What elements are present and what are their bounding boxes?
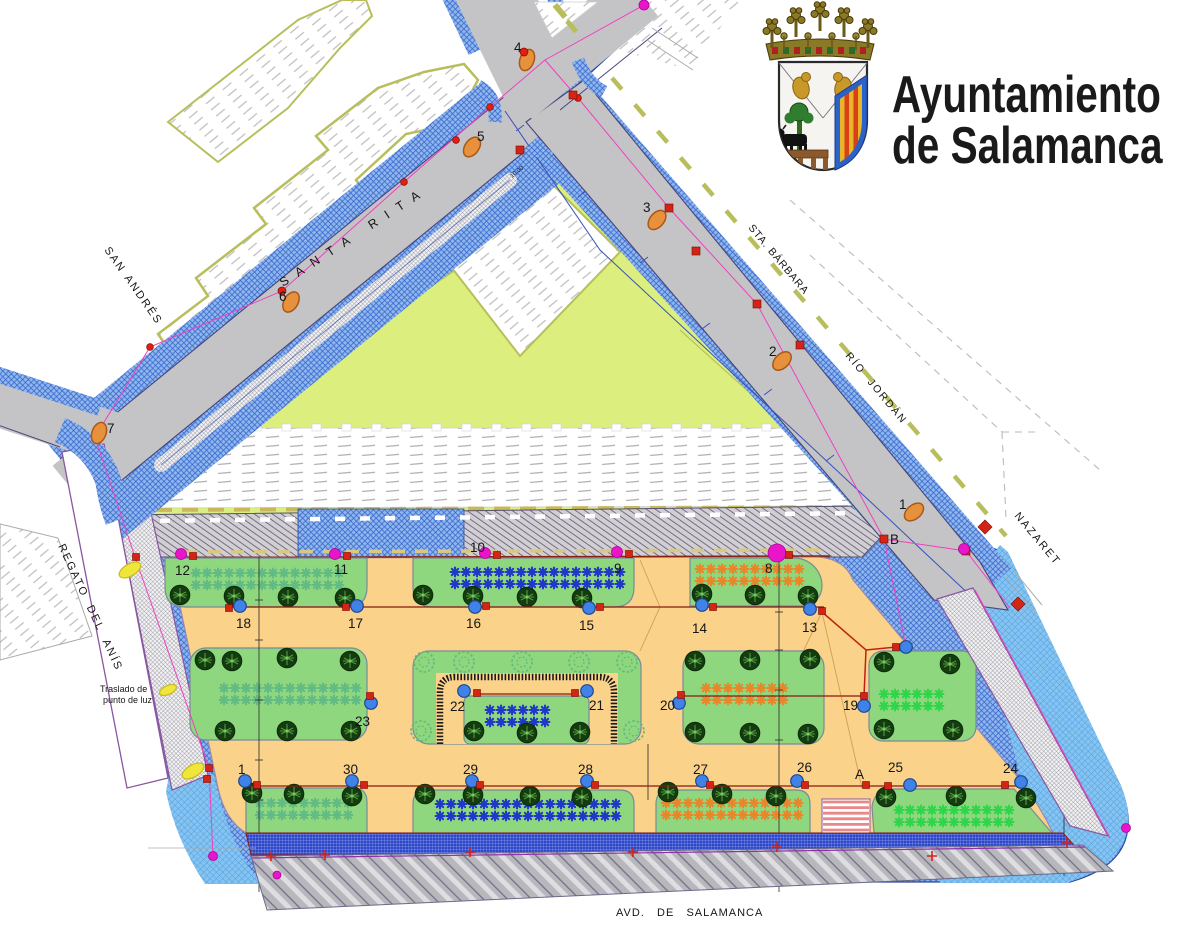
svg-text:30: 30	[343, 762, 358, 777]
svg-text:29: 29	[463, 762, 478, 777]
svg-text:5: 5	[477, 129, 485, 144]
svg-text:2: 2	[769, 344, 777, 359]
svg-text:25: 25	[888, 760, 903, 775]
svg-text:Traslado de: Traslado de	[100, 684, 147, 694]
svg-text:21: 21	[589, 698, 604, 713]
svg-text:Ayuntamiento: Ayuntamiento	[892, 65, 1161, 123]
svg-text:18: 18	[236, 616, 251, 631]
svg-text:1: 1	[899, 497, 907, 512]
svg-text:3: 3	[643, 200, 651, 215]
svg-text:11: 11	[334, 562, 348, 577]
svg-text:7: 7	[107, 421, 115, 436]
svg-text:14: 14	[692, 621, 708, 636]
svg-text:1: 1	[238, 762, 246, 777]
svg-text:16: 16	[466, 616, 481, 631]
svg-text:4: 4	[514, 40, 522, 55]
svg-text:8: 8	[765, 561, 773, 576]
svg-text:A: A	[855, 767, 864, 782]
svg-text:15: 15	[579, 618, 594, 633]
svg-text:13: 13	[802, 620, 817, 635]
svg-text:27: 27	[693, 762, 708, 777]
svg-text:de Salamanca: de Salamanca	[892, 116, 1163, 174]
svg-text:9: 9	[614, 561, 622, 576]
svg-text:AVD. DE SALAMANCA: AVD. DE SALAMANCA	[616, 907, 763, 919]
svg-text:28: 28	[578, 762, 593, 777]
svg-text:12: 12	[175, 563, 190, 578]
svg-text:17: 17	[348, 616, 363, 631]
svg-text:punto de luz: punto de luz	[103, 695, 153, 705]
svg-text:23: 23	[355, 714, 370, 729]
svg-text:B: B	[890, 532, 899, 547]
svg-text:20: 20	[660, 698, 675, 713]
svg-text:10: 10	[470, 540, 485, 555]
svg-text:24: 24	[1003, 761, 1019, 776]
svg-text:6: 6	[279, 289, 287, 304]
svg-text:22: 22	[450, 699, 465, 714]
svg-text:19: 19	[843, 698, 858, 713]
svg-text:26: 26	[797, 760, 812, 775]
